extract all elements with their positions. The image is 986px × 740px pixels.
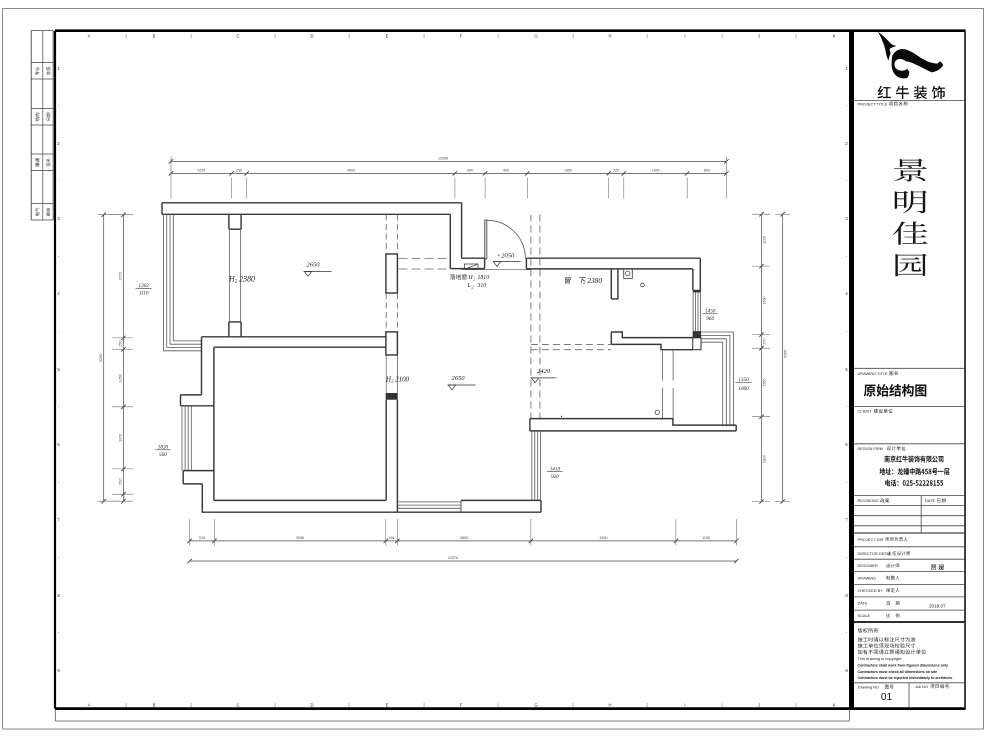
svg-text:1850: 1850 xyxy=(564,168,572,172)
svg-text:A: A xyxy=(88,703,91,708)
svg-text:J: J xyxy=(758,34,760,39)
svg-text:960: 960 xyxy=(706,316,714,322)
svg-text:H2 2380: H2 2380 xyxy=(228,275,255,285)
svg-text:A: A xyxy=(88,34,91,39)
svg-text:E: E xyxy=(386,34,389,39)
svg-text:|: | xyxy=(795,34,796,39)
svg-text:6265: 6265 xyxy=(784,350,788,358)
svg-text:B: B xyxy=(153,34,156,39)
svg-text:3605: 3605 xyxy=(460,536,468,540)
svg-text:Drawing NO: Drawing NO xyxy=(858,685,879,690)
svg-text:|: | xyxy=(497,703,498,708)
svg-text:310: 310 xyxy=(477,283,487,289)
svg-text:|: | xyxy=(190,34,191,39)
svg-text:K: K xyxy=(833,703,836,708)
svg-text:|: | xyxy=(721,703,722,708)
svg-text:Job NO: Job NO xyxy=(915,684,928,689)
svg-text:1060: 1060 xyxy=(738,386,749,392)
svg-text:2705: 2705 xyxy=(119,272,123,280)
svg-text:I: I xyxy=(684,703,685,708)
svg-text:560: 560 xyxy=(159,452,167,458)
svg-text:G: G xyxy=(534,703,537,708)
svg-text:250: 250 xyxy=(119,341,123,347)
svg-text:I: I xyxy=(684,34,685,39)
svg-text:2: 2 xyxy=(472,285,474,289)
svg-text:2650: 2650 xyxy=(306,262,320,269)
svg-text:2: 2 xyxy=(473,277,475,281)
svg-text:1450: 1450 xyxy=(705,308,716,315)
svg-text:DESIGNER: DESIGNER xyxy=(858,563,879,568)
svg-text:1550: 1550 xyxy=(763,378,767,386)
svg-text:|: | xyxy=(795,703,796,708)
svg-text:850: 850 xyxy=(704,168,710,172)
svg-text:4500: 4500 xyxy=(347,168,355,172)
svg-text:F: F xyxy=(460,34,463,39)
svg-text:F: F xyxy=(460,703,463,708)
svg-text:1410: 1410 xyxy=(550,465,561,472)
svg-text:DRAWING: DRAWING xyxy=(858,575,877,580)
svg-text:01: 01 xyxy=(881,692,893,703)
svg-text:|: | xyxy=(423,703,424,708)
svg-text:3390: 3390 xyxy=(599,536,607,540)
svg-text:2420: 2420 xyxy=(537,368,551,375)
svg-text:H: H xyxy=(608,703,611,708)
svg-text:|: | xyxy=(721,34,722,39)
svg-text:E: E xyxy=(386,703,389,708)
svg-text:920: 920 xyxy=(551,474,559,480)
svg-text:550: 550 xyxy=(119,478,123,484)
svg-text:270: 270 xyxy=(763,338,767,344)
svg-text:|: | xyxy=(497,34,498,39)
svg-text:|: | xyxy=(646,34,647,39)
svg-text:H2 2100: H2 2100 xyxy=(385,375,410,383)
svg-text:|: | xyxy=(572,703,573,708)
svg-text:REVISIONS: REVISIONS xyxy=(858,498,880,503)
svg-text:519: 519 xyxy=(199,536,205,540)
svg-text:1370: 1370 xyxy=(119,434,123,442)
svg-text:246: 246 xyxy=(389,536,395,540)
svg-text:1350: 1350 xyxy=(651,168,659,172)
svg-text:1235: 1235 xyxy=(197,168,205,172)
svg-text:|: | xyxy=(190,703,191,708)
svg-text:D: D xyxy=(310,34,313,39)
svg-text:2 2380: 2 2380 xyxy=(583,276,602,286)
svg-text:C: C xyxy=(236,703,239,708)
svg-text:DATE: DATE xyxy=(925,498,935,503)
svg-text:|: | xyxy=(125,34,126,39)
svg-text:Contractors must check all dim: Contractors must check all dimensions on… xyxy=(858,670,938,674)
svg-text:2650: 2650 xyxy=(451,375,465,382)
svg-text:CLIENT: CLIENT xyxy=(858,409,872,414)
svg-text:|: | xyxy=(348,703,349,708)
svg-text:1105: 1105 xyxy=(763,236,767,244)
svg-text:C: C xyxy=(236,34,239,39)
svg-text:PROJECT TITLE: PROJECT TITLE xyxy=(858,101,888,106)
svg-text:|: | xyxy=(572,34,573,39)
svg-text:DESIGN FIRM: DESIGN FIRM xyxy=(858,446,884,451)
svg-text:CHECKED BY: CHECKED BY xyxy=(858,588,884,593)
svg-text:D: D xyxy=(310,703,313,708)
svg-text:1110: 1110 xyxy=(139,291,149,297)
svg-text:6265: 6265 xyxy=(99,354,103,362)
svg-text:Contractors must be reported i: Contractors must be reported immediately… xyxy=(858,676,953,680)
svg-text:+2050: +2050 xyxy=(497,252,515,259)
svg-text:1810: 1810 xyxy=(763,455,767,463)
svg-text:320: 320 xyxy=(613,168,619,172)
svg-text:|: | xyxy=(646,703,647,708)
svg-text:|: | xyxy=(274,34,275,39)
svg-text:12596: 12596 xyxy=(438,156,448,160)
svg-text:1810: 1810 xyxy=(478,275,490,281)
svg-text:SCALE: SCALE xyxy=(858,613,871,618)
svg-text:1190: 1190 xyxy=(702,536,710,540)
svg-text:H: H xyxy=(608,34,611,39)
svg-text:L: L xyxy=(467,283,471,289)
svg-text:DRAWING TITLE: DRAWING TITLE xyxy=(858,371,889,376)
svg-text:905: 905 xyxy=(503,168,509,172)
svg-text:This drawing is copyright: This drawing is copyright xyxy=(858,656,903,661)
svg-text:G: G xyxy=(534,34,537,39)
svg-text:3936: 3936 xyxy=(296,536,304,540)
svg-text:650: 650 xyxy=(467,168,473,172)
svg-text:K: K xyxy=(833,34,836,39)
svg-text:2018.07: 2018.07 xyxy=(929,604,946,609)
svg-text:J: J xyxy=(758,703,760,708)
svg-text:DIRECTOR DESN: DIRECTOR DESN xyxy=(858,551,890,556)
svg-text:12376: 12376 xyxy=(448,556,458,560)
svg-text:250: 250 xyxy=(236,168,242,172)
svg-text:B: B xyxy=(153,703,156,708)
svg-text:|: | xyxy=(423,34,424,39)
svg-text:|: | xyxy=(125,703,126,708)
svg-text:Contractors shall work from fi: Contractors shall work from figured dime… xyxy=(858,664,948,668)
svg-text:DATE: DATE xyxy=(858,601,868,606)
svg-text:PROJECT DIR: PROJECT DIR xyxy=(858,537,884,542)
svg-text:1530: 1530 xyxy=(763,296,767,304)
svg-text:1250: 1250 xyxy=(119,374,123,382)
svg-text:|: | xyxy=(348,34,349,39)
svg-text:|: | xyxy=(274,703,275,708)
